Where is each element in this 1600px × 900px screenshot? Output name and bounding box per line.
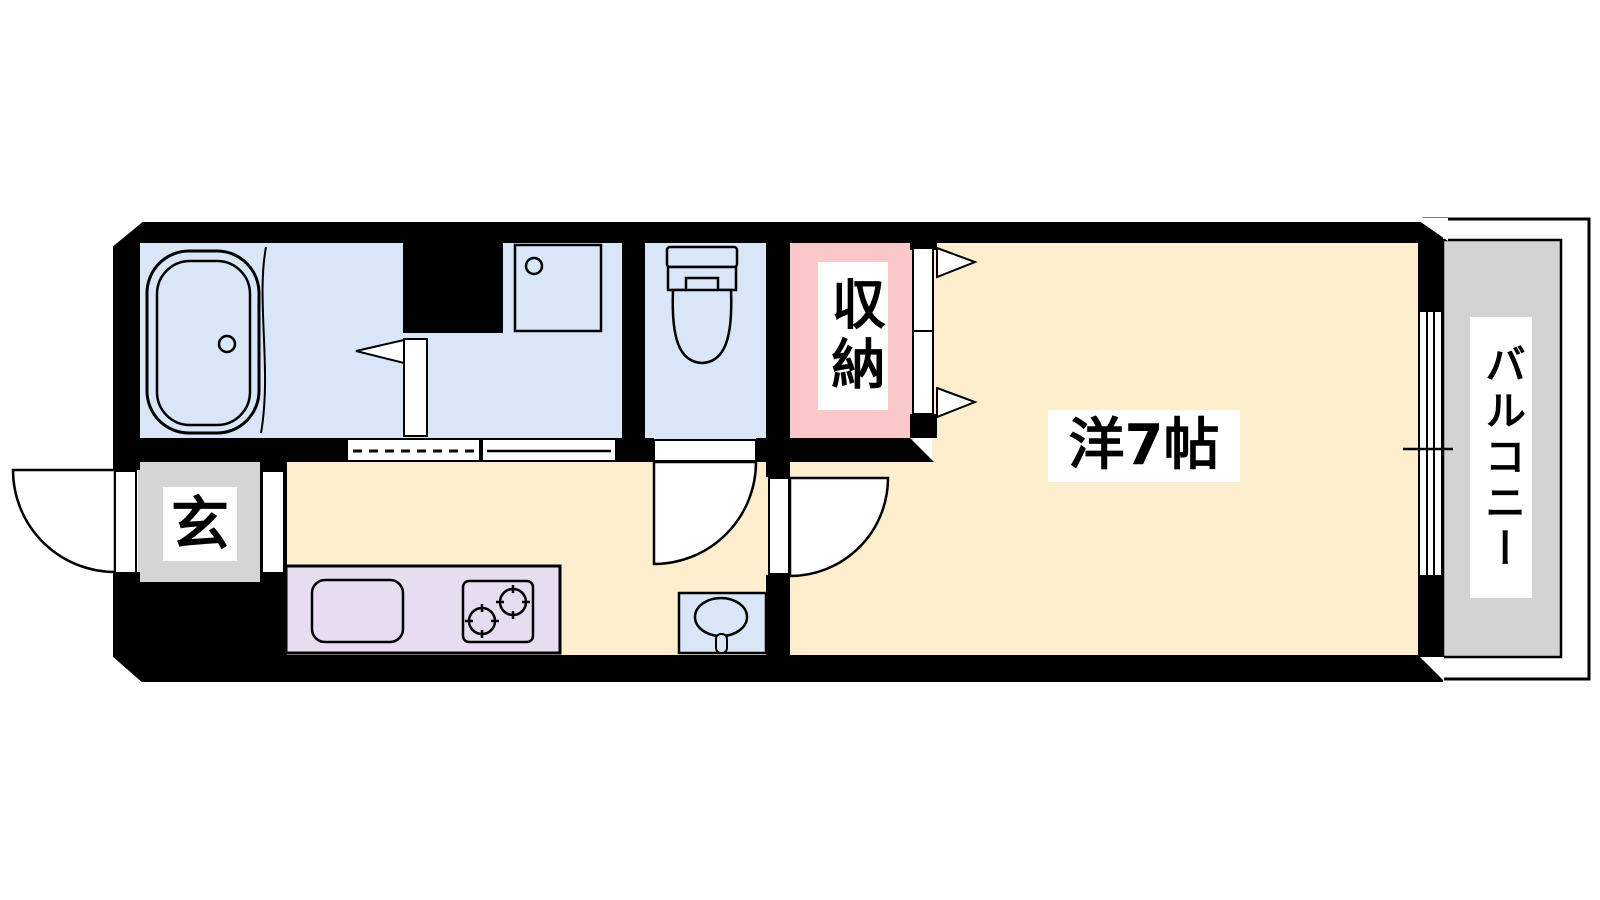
closet-label: 収納	[818, 262, 888, 410]
washbasin-bowl	[695, 598, 747, 636]
toilet-icon	[667, 247, 737, 363]
wall-band-stub	[756, 438, 767, 462]
room-door-panel	[769, 478, 789, 574]
western-room-label: 洋7帖	[1048, 410, 1240, 482]
kitchen-counter-icon	[286, 566, 560, 653]
wall-band-mid	[616, 438, 654, 462]
kitchen-sink	[312, 580, 403, 642]
wall-bottom	[113, 655, 1443, 682]
wall-chunk-washroom	[403, 222, 503, 333]
washer-pan-drain	[526, 258, 542, 274]
closet-door-panel-bottom	[913, 331, 933, 414]
wall-closet-door-bottom	[910, 414, 937, 438]
entrance-hall-opening	[262, 471, 284, 573]
wall-closet-bottom	[766, 438, 934, 462]
entrance-label: 玄	[163, 487, 237, 561]
wall-left-upper	[113, 222, 140, 470]
toilet-door-panel	[654, 440, 756, 461]
balcony-label: バルコニー	[1470, 317, 1532, 598]
wall-band-left	[113, 438, 347, 462]
washbasin-faucet	[716, 634, 727, 653]
washbasin-icon	[679, 593, 766, 653]
washer-pan-icon	[515, 245, 601, 331]
floor-plan-page: 玄 収納 洋7帖 バルコニー	[0, 0, 1600, 900]
sliding-door-dashed	[347, 439, 480, 461]
window-sash	[1419, 311, 1442, 576]
wall-entrance-block	[113, 582, 287, 682]
wall-toilet-left	[622, 238, 645, 438]
closet-door-panel-top	[913, 248, 933, 331]
washer-pan	[515, 245, 601, 331]
entrance-door-panel	[115, 471, 136, 573]
entrance-door-swing	[13, 470, 115, 572]
floor-plan-drawing	[0, 0, 1600, 900]
toilet-bowl	[673, 290, 732, 363]
toilet-tank	[667, 247, 737, 267]
wall-below-room-door	[766, 575, 790, 657]
washroom-door-panel	[404, 339, 427, 436]
